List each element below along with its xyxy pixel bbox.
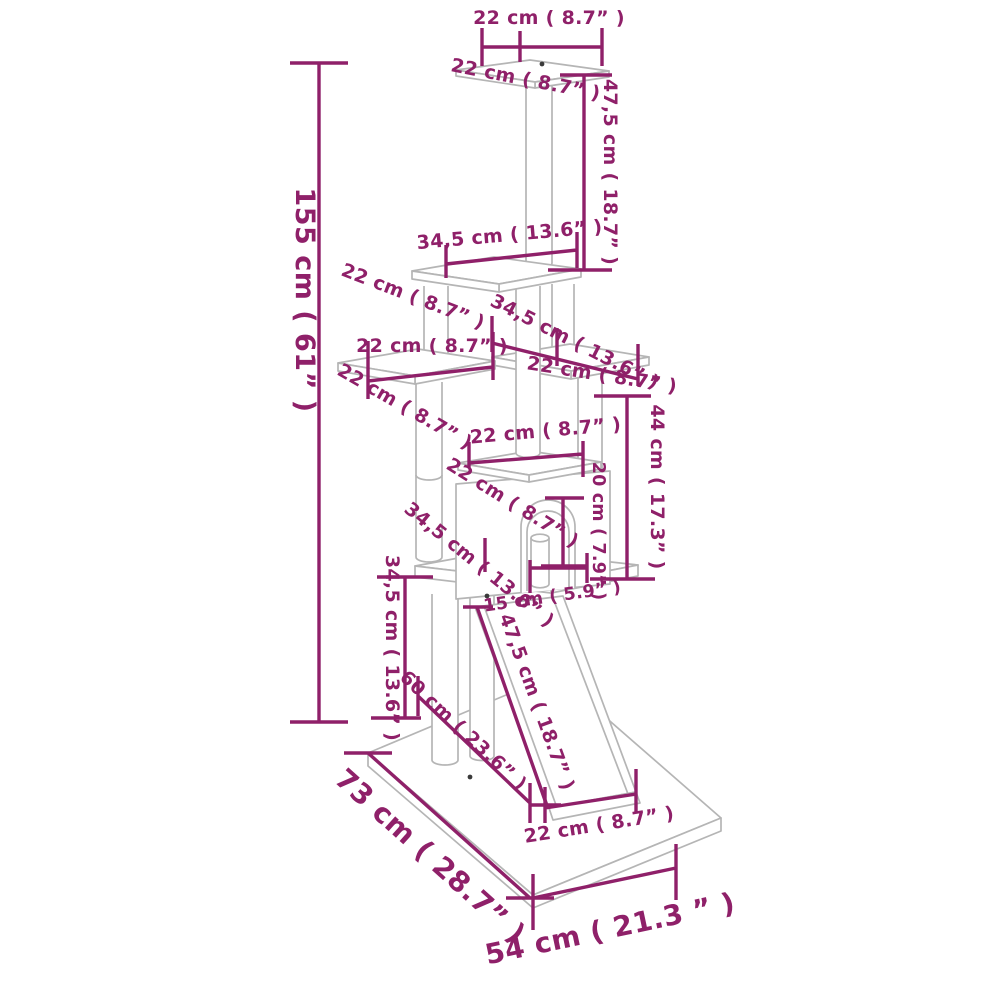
dimension-label: 44 cm ( 17.3” ): [646, 404, 668, 569]
screw-dot: [468, 775, 473, 780]
diagram-canvas: 22 cm ( 8.7” ) 22 cm ( 8.7” ) 47,5 cm ( …: [0, 0, 1000, 1000]
dimension-label: 22 cm ( 8.7” ): [473, 7, 625, 29]
post-inside-door: [531, 538, 549, 588]
dimension-label: 22 cm ( 8.7” ): [356, 335, 508, 357]
cat-tree-dimension-diagram: 22 cm ( 8.7” ) 22 cm ( 8.7” ) 47,5 cm ( …: [0, 0, 1000, 1000]
scratching-post: [432, 594, 458, 765]
dimension-label: 34,5 cm ( 13.6” ): [416, 216, 603, 254]
dimension-label: 155 cm ( 61” ): [289, 187, 320, 412]
screw-dot: [540, 62, 545, 67]
dim-top-platform-width: 22 cm ( 8.7” ): [473, 7, 625, 66]
dimension-line: [482, 28, 602, 66]
dimension-label: 34,5 cm ( 13.6” ): [381, 555, 403, 741]
dim-total-height: 155 cm ( 61” ): [289, 63, 348, 722]
dim-lower-section-height: 34,5 cm ( 13.6” ): [371, 555, 433, 741]
